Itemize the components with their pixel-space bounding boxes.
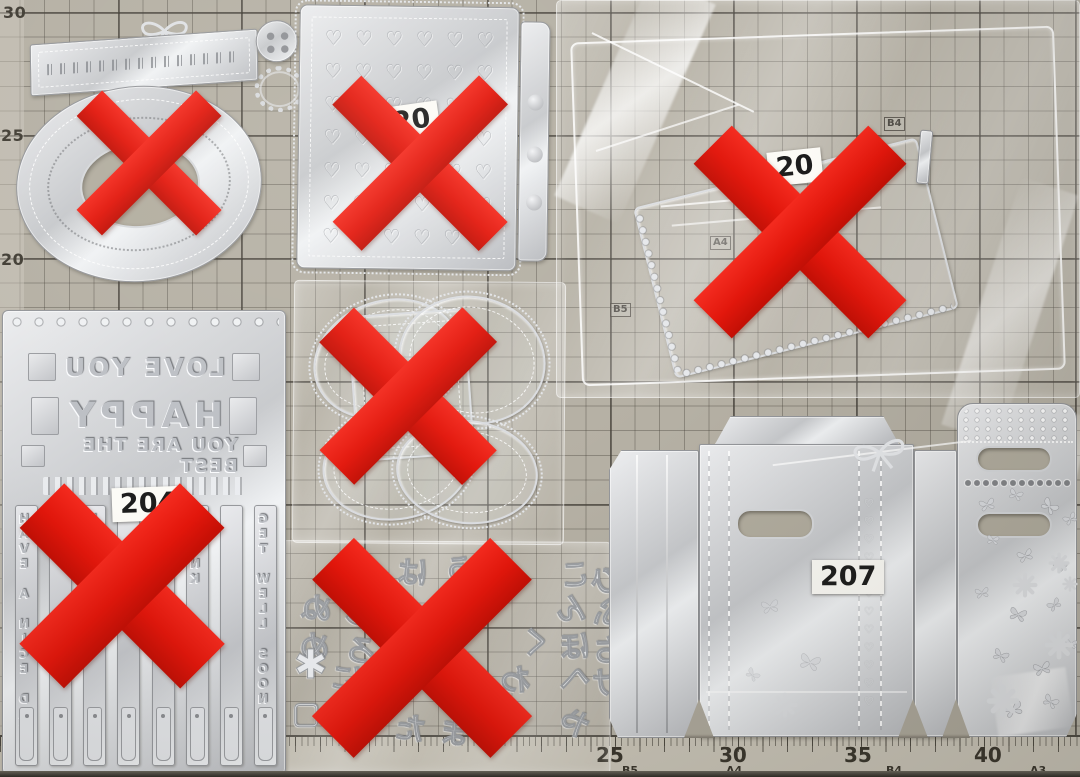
hiragana-die-glyph: へ — [560, 654, 590, 698]
daisy-flower-icon — [1044, 630, 1074, 660]
banner-tag-tab — [190, 707, 205, 761]
heart-icon: ♡ — [324, 61, 342, 81]
button-die — [255, 20, 298, 63]
heart-icon: ♡ — [355, 28, 373, 48]
bag-back-fold-die — [914, 450, 957, 737]
banner-tag-tab — [121, 707, 136, 761]
daisy-flower-icon — [1048, 552, 1070, 574]
daisy-flower-icon — [1012, 572, 1038, 598]
daisy-flower-icon — [986, 684, 1020, 718]
banner-tag-tab — [53, 707, 68, 761]
heart-icon: ♡ — [385, 29, 403, 49]
lace-crown — [961, 407, 1073, 443]
banner-text: HAVE A NICE DAY — [17, 512, 31, 737]
butterfly-icon — [985, 533, 1001, 546]
fold-line — [636, 455, 638, 733]
banner-tag-tab — [156, 707, 171, 761]
heart-icon: ♡ — [864, 677, 874, 690]
mat-scale-30: 30 — [3, 3, 26, 22]
heart-icon: ♡ — [864, 515, 874, 528]
heart-icon: ♡ — [864, 533, 874, 546]
heart-icon: ♡ — [864, 623, 874, 636]
heart-icon: ♡ — [864, 659, 874, 672]
red-x-mark-frames — [328, 306, 488, 486]
heart-icon: ♡ — [864, 695, 874, 708]
plate-dot-edge — [9, 315, 279, 330]
heart-icon: ♡ — [415, 29, 433, 49]
phrase-row: YOU ARE THE BEST — [15, 443, 273, 469]
daisy-flower-icon — [1062, 576, 1078, 592]
butterfly-icon — [973, 585, 991, 600]
red-x-mark-hiragana — [322, 538, 522, 758]
red-x-mark-folder — [702, 132, 898, 332]
mat-scale-35-bottom: 35 — [844, 743, 872, 767]
heart-icon: ♡ — [446, 30, 464, 50]
bag-handle-slot — [976, 446, 1052, 472]
mat-scale-40-bottom: 40 — [974, 743, 1002, 767]
heart-icon: ♡ — [445, 63, 463, 83]
hinge-rivet — [526, 194, 542, 210]
hinge-rivet — [527, 146, 543, 162]
hiragana-die-glyph: や — [560, 700, 590, 744]
banner-tag-tab — [224, 707, 239, 761]
vertical-banner-die: GET WELL SOON — [254, 505, 277, 766]
hinge-rivet — [527, 94, 543, 110]
photo-cutting-dies-on-mat: 30 25 20 B4 A4 B5 ♡♡♡♡♡♡♡♡♡♡♡♡♡♡♡♡♡♡♡♡♡♡… — [0, 0, 1080, 777]
heart-icon: ♡ — [864, 641, 874, 654]
red-x-mark-doily — [82, 96, 216, 230]
phrase-row: LOVE YOU — [15, 351, 273, 383]
stitch-line — [708, 451, 710, 730]
daisy-flower-icon — [772, 692, 798, 718]
banner-tag-tab — [258, 707, 273, 761]
bag-handle-slot — [736, 509, 814, 539]
mat-scale-20: 20 — [1, 250, 24, 269]
red-x-mark-heart-panel — [338, 88, 502, 238]
heart-icon: ♡ — [864, 497, 874, 510]
butterfly-icon — [759, 596, 781, 615]
vertical-banner-die — [220, 505, 243, 766]
banner-tag-tab — [19, 707, 34, 761]
heart-icon: ♡ — [324, 28, 342, 48]
bag-side-panel-die — [609, 450, 699, 738]
item-number-sticker-207: 207 — [812, 560, 884, 594]
heart-icon: ♡ — [415, 62, 433, 82]
photo-bottom-edge — [0, 771, 1080, 777]
red-x-mark-sentiment-plate — [32, 468, 212, 703]
fold-line — [666, 455, 668, 733]
phrase-love-you: LOVE YOU — [62, 353, 226, 382]
wreath-die — [254, 66, 305, 113]
heart-icon: ♡ — [476, 30, 494, 50]
phrase-happy: HAPPY — [65, 396, 223, 436]
phrase-row: HAPPY — [15, 395, 273, 437]
heart-icon: ♡ — [864, 605, 874, 618]
heart-stitch-column: ♡♡♡♡♡♡♡♡♡♡♡♡ — [863, 497, 877, 696]
heart-icon: ♡ — [385, 62, 403, 82]
stitch-line — [728, 451, 730, 730]
panel-hinge-tab — [517, 21, 550, 261]
banner-text: GET WELL SOON — [256, 512, 270, 707]
banner-tag-tab — [87, 707, 102, 761]
mat-scale-25-left: 25 — [1, 126, 24, 145]
